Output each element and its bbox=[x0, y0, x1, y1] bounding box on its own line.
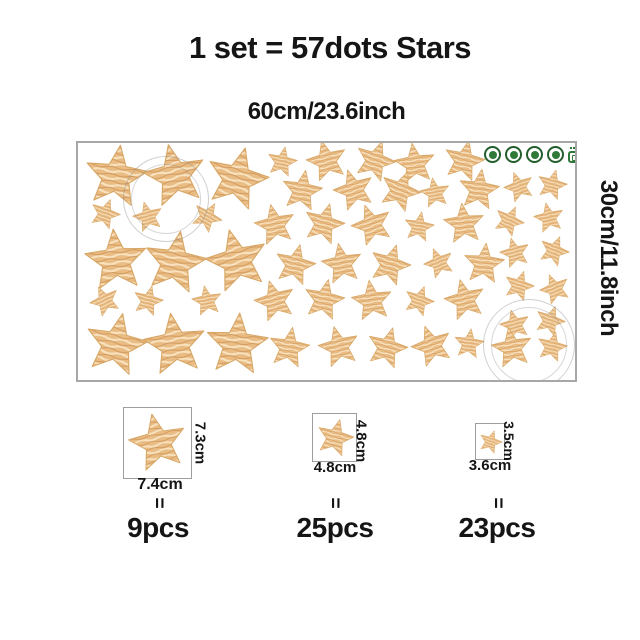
star-sticker bbox=[204, 310, 270, 373]
legend-large-star-box bbox=[123, 407, 192, 479]
star-sticker bbox=[478, 427, 503, 454]
star-sticker bbox=[531, 200, 566, 234]
eco-cert-icon bbox=[547, 146, 564, 163]
watermark-circle bbox=[483, 299, 575, 382]
legend-medium-count: 25pcs bbox=[265, 512, 405, 544]
star-sticker bbox=[272, 240, 320, 287]
star-sticker bbox=[315, 322, 363, 369]
small-star-sample bbox=[478, 427, 503, 457]
star-sticker bbox=[200, 223, 273, 294]
page-title: 1 set = 57dots Stars bbox=[20, 30, 640, 66]
star-sticker bbox=[441, 275, 489, 322]
eco-cert-icon bbox=[484, 146, 501, 163]
star-sticker bbox=[366, 239, 416, 287]
eco-cert-icon bbox=[505, 146, 522, 163]
star-sticker bbox=[302, 143, 350, 183]
legend-large-width-label: 7.4cm bbox=[100, 476, 220, 494]
star-sticker bbox=[420, 243, 458, 280]
star-sticker bbox=[131, 282, 167, 317]
star-sticker bbox=[401, 281, 438, 317]
star-sticker bbox=[266, 324, 312, 368]
star-sticker bbox=[85, 281, 124, 319]
legend-small-width-label: 3.6cm bbox=[430, 457, 550, 474]
star-sticker bbox=[81, 307, 153, 376]
cert-badges bbox=[484, 146, 577, 163]
legend-small-count: 23pcs bbox=[427, 512, 567, 544]
star-sticker bbox=[250, 275, 299, 323]
star-sticker bbox=[190, 283, 224, 316]
star-sticker bbox=[127, 412, 189, 472]
star-sticker bbox=[462, 241, 506, 283]
star-sticker bbox=[418, 175, 452, 208]
large-star-sample bbox=[127, 412, 189, 474]
star-sticker bbox=[402, 209, 436, 242]
star-sticker bbox=[319, 240, 365, 284]
star-sticker bbox=[251, 200, 298, 245]
star-sticker bbox=[406, 319, 457, 368]
eco-chip-icon bbox=[568, 151, 577, 163]
star-sticker bbox=[87, 194, 124, 230]
legend-large-count: 9pcs bbox=[88, 512, 228, 544]
watermark-circle bbox=[123, 156, 209, 242]
sticker-sheet bbox=[76, 141, 577, 382]
star-sticker bbox=[140, 309, 208, 375]
star-sticker bbox=[315, 417, 355, 458]
star-sticker bbox=[453, 327, 486, 359]
star-sticker bbox=[501, 267, 538, 303]
star-sticker bbox=[346, 198, 397, 247]
star-sticker bbox=[392, 143, 437, 184]
star-sticker bbox=[301, 275, 348, 320]
star-sticker bbox=[497, 234, 533, 269]
eco-cert-icon bbox=[526, 146, 543, 163]
star-sticker bbox=[201, 143, 275, 212]
legend-medium-width-label: 4.8cm bbox=[275, 459, 395, 476]
product-infographic: 1 set = 57dots Stars 60cm/23.6inch 30cm/… bbox=[0, 0, 640, 640]
star-sticker bbox=[536, 231, 571, 268]
star-sticker bbox=[265, 144, 300, 178]
star-sticker bbox=[442, 201, 486, 243]
star-sticker bbox=[83, 226, 149, 289]
star-sticker bbox=[350, 143, 401, 184]
star-sticker bbox=[349, 277, 394, 320]
star-sticker bbox=[535, 166, 571, 201]
star-sticker bbox=[457, 166, 502, 209]
medium-star-sample bbox=[315, 417, 355, 459]
star-sticker bbox=[490, 201, 529, 239]
star-sticker bbox=[363, 322, 412, 370]
sheet-width-label: 60cm/23.6inch bbox=[76, 98, 577, 126]
star-sticker bbox=[500, 167, 537, 203]
legend-medium-star-box bbox=[312, 413, 357, 462]
